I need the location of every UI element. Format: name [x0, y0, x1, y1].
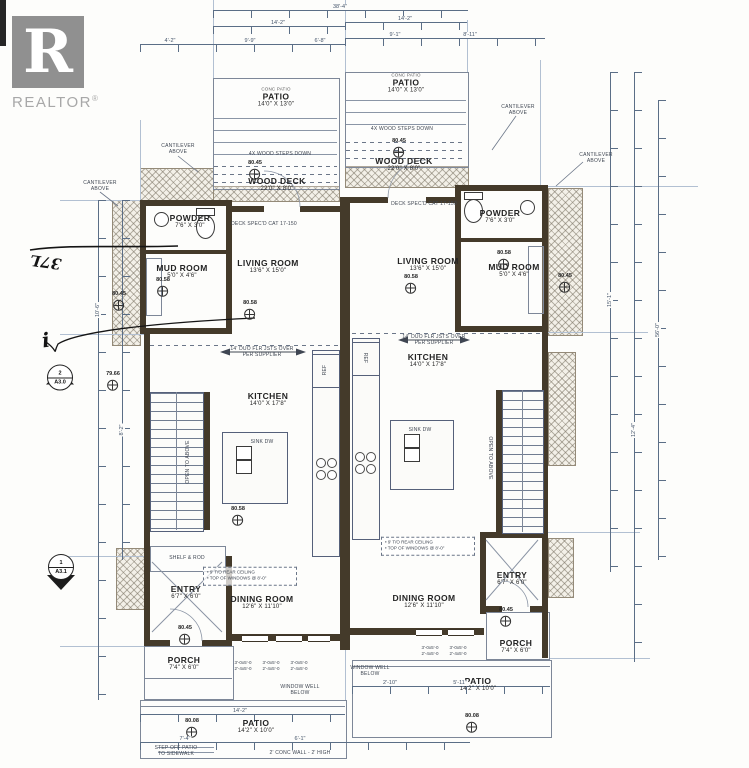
dimension-label: 8'-11": [462, 32, 478, 38]
window-size-tag: 3'-0x5'-0 2'-4x5'-0: [422, 645, 439, 657]
annotation-note: CANTILEVER ABOVE: [501, 104, 534, 117]
annotation-note: CANTILEVER ABOVE: [579, 152, 612, 165]
annotation-note: DECK SPEC'D CAT 17-150: [391, 201, 457, 207]
dimension-label: 8'-2": [119, 424, 125, 437]
annotation-note: DECK SPEC'D CAT 17-150: [231, 221, 297, 227]
ceiling-note-box: • 9' T/O REAR CEILING• TOP OF WINDOWS @ …: [203, 567, 297, 586]
elevation-marker: 80.45: [558, 274, 572, 297]
dimension-label: 15'-1": [607, 292, 613, 308]
annotation-note: REF: [362, 353, 368, 364]
shape: 13'6" X 15'0": [397, 266, 459, 272]
shape: 7'4" X 6'0": [500, 648, 533, 654]
room-label-powder-a: POWDER7'6" X 3'0": [170, 213, 211, 229]
elevation-marker: 80.45: [178, 626, 192, 649]
dimension-label: 56'-0": [655, 322, 661, 338]
annotation-note: WINDOW WELL BELOW: [350, 665, 389, 678]
room-label-porch-b: PORCH7'4" X 6'0": [500, 638, 533, 654]
room-label-kitchen-b: KITCHEN14'0" X 17'8": [408, 352, 449, 368]
shape: • TOP OF WINDOWS @ 8'-0": [385, 546, 471, 552]
shape: 14'2" X 10'0": [460, 686, 497, 692]
plan-labels-layer: CONC PATIOPATIO14'0" X 13'0"WOOD DECK22'…: [0, 0, 749, 768]
annotation-note: WINDOW WELL BELOW: [280, 684, 319, 697]
dimension-label: 10'-6": [95, 302, 101, 318]
annotation-note: SINK DW: [409, 427, 432, 433]
elevation-marker: 80.45: [499, 608, 513, 631]
floor-plan-canvas: CONC PATIOPATIO14'0" X 13'0"WOOD DECK22'…: [0, 0, 749, 768]
shape: PATIO: [238, 718, 275, 728]
room-label-porch-a: PORCH7'4" X 6'0": [168, 655, 201, 671]
realtor-logo-text: REALTOR®: [12, 94, 102, 111]
elevation-marker: 80.58: [497, 251, 511, 274]
shape: 14'0" X 13'0": [258, 102, 295, 108]
shape: MUD ROOM: [156, 263, 207, 273]
annotation-note: CANTILEVER ABOVE: [161, 143, 194, 156]
annotation-note: OPEN TO ABOVE: [487, 436, 493, 479]
room-label-kitchen-a: KITCHEN14'0" X 17'8": [248, 391, 289, 407]
annotation-note: REF: [322, 365, 328, 376]
shape: ENTRY: [497, 570, 528, 580]
dimension-label: 14'-2": [232, 708, 248, 714]
shape: PORCH: [168, 655, 201, 665]
shape: 6'7" X 6'0": [497, 580, 528, 586]
realtor-logo-mark: R: [12, 16, 84, 88]
shape: 1: [49, 560, 73, 568]
room-label-dining-room-a: DINING ROOM12'6" X 11'10": [231, 594, 294, 610]
shape: 12'6" X 11'10": [393, 603, 456, 609]
scanned-floor-plan-page: { "logo": {"letter": "R", "brand": "REAL…: [0, 0, 749, 768]
shape: LIVING ROOM: [397, 256, 459, 266]
shape: 14'0" X 13'0": [388, 88, 425, 94]
shape: 2: [48, 370, 72, 378]
shape: KITCHEN: [408, 352, 449, 362]
realtor-logo-letter: R: [12, 16, 84, 88]
ceiling-note-box: • 9' T/O REAR CEILING• TOP OF WINDOWS @ …: [381, 537, 475, 556]
shape: 6'7" X 6'0": [171, 594, 202, 600]
dimension-label: 14'-2": [397, 16, 413, 22]
dimension-label: 12'-4": [631, 422, 637, 438]
dimension-label: 6'-1": [294, 736, 307, 742]
section-marker-A3.0: 2A3.0: [43, 370, 77, 391]
shape: 7'4" X 6'0": [168, 665, 201, 671]
shape: A3.1: [49, 568, 73, 575]
elevation-marker: 80.58: [404, 275, 418, 298]
annotation-note: SINK DW: [251, 439, 274, 445]
annotation-note: 4X WOOD STEPS DOWN: [371, 126, 433, 132]
elevation-marker: 80.58: [156, 278, 170, 301]
elevation-marker: 80.45: [248, 161, 262, 184]
room-label-patio-b-top: CONC PATIOPATIO14'0" X 13'0": [388, 73, 425, 94]
elevation-marker: 79.66: [106, 372, 120, 395]
shape: 22'0" X 8'0": [375, 166, 432, 172]
shape: 12'6" X 11'10": [231, 604, 294, 610]
window-size-tag: 3'-0x5'-0 2'-4x5'-0: [263, 660, 280, 672]
room-label-patio-a-top: CONC PATIOPATIO14'0" X 13'0": [258, 87, 295, 108]
dimension-label: 9'-9": [244, 38, 257, 44]
shape: 13'6" X 15'0": [237, 268, 299, 274]
elevation-marker: 80.58: [243, 301, 257, 324]
shape: PATIO: [258, 92, 295, 102]
annotation-note: 14' DUO FLR JSTS OVER PER SUPPLIER: [230, 346, 293, 359]
annotation-note: CANTILEVER ABOVE: [83, 180, 116, 193]
annotation-note: STEP OFF PATIO TO SIDEWALK: [155, 745, 198, 758]
annotation-note: 2' CONC WALL - 2' HIGH: [270, 750, 331, 756]
room-label-entry-a: ENTRY6'7" X 6'0": [171, 584, 202, 600]
handwritten-mark: i: [40, 328, 51, 353]
room-label-dining-room-b: DINING ROOM12'6" X 11'10": [393, 593, 456, 609]
realtor-logo: R REALTOR®: [12, 16, 102, 111]
shape: MUD ROOM: [488, 262, 539, 272]
elevation-marker: 80.45: [112, 292, 126, 315]
dimension-label: 38'-4": [332, 4, 348, 10]
annotation-note: OPEN TO ABOVE: [185, 440, 191, 483]
shape: PORCH: [500, 638, 533, 648]
shape: POWDER: [480, 208, 521, 218]
room-label-entry-b: ENTRY6'7" X 6'0": [497, 570, 528, 586]
shape: 7'6" X 3'0": [480, 218, 521, 224]
shape: 2A3.0: [47, 365, 73, 391]
section-marker-A3.1: 1A3.1: [44, 554, 78, 590]
shape: 14'0" X 17'8": [408, 362, 449, 368]
elevation-marker: 80.08: [465, 714, 479, 737]
dimension-label: 9'-1": [389, 32, 402, 38]
window-size-tag: 3'-0x5'-0 2'-4x5'-0: [291, 660, 308, 672]
shape: ENTRY: [171, 584, 202, 594]
window-size-tag: 3'-0x5'-0 2'-4x5'-0: [235, 660, 252, 672]
dimension-label: 7'-4": [179, 736, 192, 742]
shape: A3.0: [48, 378, 72, 385]
elevation-marker: 80.58: [231, 507, 245, 530]
elevation-marker: 80.45: [392, 139, 406, 162]
room-label-living-room-b: LIVING ROOM13'6" X 15'0": [397, 256, 459, 272]
annotation-note: 4X WOOD STEPS DOWN: [249, 151, 311, 157]
shape: LIVING ROOM: [237, 258, 299, 268]
shape: PATIO: [388, 78, 425, 88]
annotation-note: SHELF & ROD: [169, 555, 205, 561]
room-label-patio-a-bottom: PATIO14'2" X 10'0": [238, 718, 275, 734]
annotation-note: 14' DUO FLR JSTS OVER PER SUPPLIER: [402, 334, 465, 347]
dimension-label: 6'-8": [314, 38, 327, 44]
shape: 7'6" X 3'0": [170, 223, 211, 229]
shape: POWDER: [170, 213, 211, 223]
shape: DINING ROOM: [393, 593, 456, 603]
shape: 14'2" X 10'0": [238, 728, 275, 734]
shape: 1A3.1: [48, 554, 74, 580]
handwritten-mark: 37L: [29, 251, 63, 273]
shape: 22'0" X 8'0": [248, 186, 305, 192]
registered-mark: ®: [92, 94, 99, 103]
realtor-brand: REALTOR: [12, 94, 92, 111]
dimension-label: 2'-10": [382, 680, 398, 686]
shape: 14'0" X 17'8": [248, 401, 289, 407]
dimension-label: 4'-2": [164, 38, 177, 44]
shape: DINING ROOM: [231, 594, 294, 604]
dimension-label: 5'-11": [452, 680, 468, 686]
shape: 5'0" X 4'6": [488, 272, 539, 278]
shape: • TOP OF WINDOWS @ 8'-0": [207, 576, 293, 582]
window-size-tag: 3'-0x5'-0 2'-4x5'-0: [450, 645, 467, 657]
room-label-mud-room-b: MUD ROOM5'0" X 4'6": [488, 262, 539, 278]
room-label-living-room-a: LIVING ROOM13'6" X 15'0": [237, 258, 299, 274]
dimension-label: 14'-2": [270, 20, 286, 26]
shape: KITCHEN: [248, 391, 289, 401]
room-label-powder-b: POWDER7'6" X 3'0": [480, 208, 521, 224]
